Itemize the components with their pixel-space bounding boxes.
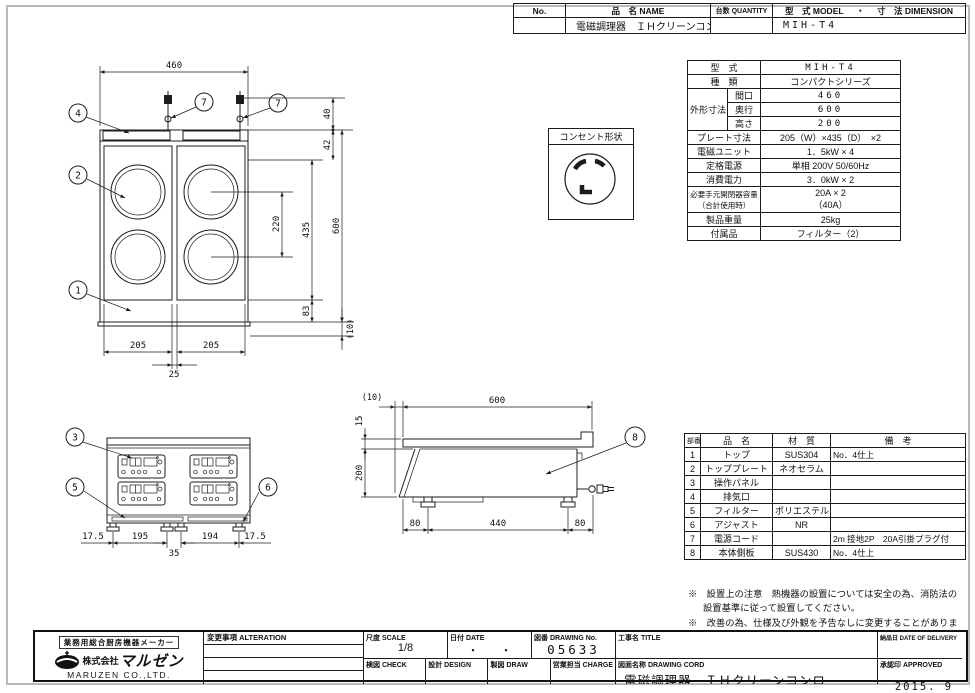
dim-margin-left: 17.5	[82, 532, 104, 542]
spec-power-label: 消費電力	[688, 173, 761, 187]
parts-row: 1トップSUS304No．4仕上	[685, 448, 966, 462]
check-cell: 検図 CHECK	[364, 659, 425, 684]
dim-overhang: (10)	[362, 393, 382, 403]
front-view-dimensions: 17.5 195 194 17.5 35	[81, 532, 271, 559]
power-cord-left	[164, 91, 172, 131]
date-value: ・ ・	[448, 642, 531, 658]
spec-weight-value: 25kg	[761, 213, 901, 227]
dim-base: (10)	[346, 319, 355, 339]
dim-depth: 600	[332, 218, 342, 234]
spec-depth-value: 600	[761, 103, 901, 117]
foot	[175, 523, 187, 531]
date-cell: 日付 DATE ・ ・	[447, 632, 531, 658]
front-view-body	[107, 438, 250, 531]
spec-table: 型 式 MIH-T4 種 類 コンパクトシリーズ 外形寸法 間口 460 奥行 …	[687, 60, 900, 241]
dim-front: 42	[323, 140, 333, 151]
charge-cell: 営業担当 CHARGE	[550, 659, 615, 684]
parts-row: 4排気口	[685, 490, 966, 504]
spec-kind-value: コンパクトシリーズ	[761, 75, 901, 89]
parts-col-name: 品 名	[701, 434, 773, 448]
value-row: 電磁調理器 ＩＨクリーンコンロ MIH-T4	[514, 18, 966, 34]
spec-rated-value: 単相 200V 50/60Hz	[761, 159, 901, 173]
parts-row: 7電源コード2m 接地2P 20A引掛プラグ付	[685, 532, 966, 546]
dim-margin-right: 17.5	[244, 532, 266, 542]
drawing-no-value: 05633	[532, 642, 615, 657]
title-block: 業務用総合厨房機器メーカー 株式会社 マルゼン MARUZEN CO.,LTD.…	[33, 630, 968, 682]
parts-row: 5フィルターポリエステル	[685, 504, 966, 518]
power-cord-right	[236, 91, 244, 131]
spec-accessory-value: フィルター（2）	[761, 227, 901, 241]
spec-unit-label: 電磁ユニット	[688, 145, 761, 159]
scale-cell: 尺度 SCALE 1/8	[364, 632, 447, 658]
spec-height-value: 200	[761, 117, 901, 131]
note-1: ※ 設置上の注意 熱機器の設置については安全の為、消防法の 設置基準に従って設置…	[688, 588, 968, 616]
callout-panel: 3	[72, 433, 78, 444]
dim-foot-span: 440	[490, 519, 506, 529]
project-title-cell: 工事名 TITLE	[615, 632, 877, 658]
dim-plate-right: 205	[203, 341, 219, 351]
spec-power-value: 3．0kW × 2	[761, 173, 901, 187]
company-logo-text: マルゼン	[120, 650, 184, 671]
value-no	[514, 18, 566, 34]
callout-plate: 2	[75, 171, 81, 182]
parts-row: 6アジャストNR	[685, 518, 966, 532]
dim-cord: 40	[323, 109, 333, 120]
dim-span-right: 194	[202, 532, 218, 542]
drawing-name-cell: 図面名称 DRAWING CORD 電磁調理器 ＩＨクリーンコンロ	[615, 658, 877, 684]
drawing-no-cell: 図番 DRAWING No. 05633	[531, 632, 615, 658]
side-view-dimensions: 600 (10) 15 200 80 440 80	[355, 393, 593, 534]
foot	[161, 523, 173, 531]
spec-model-value: MIH-T4	[761, 61, 901, 75]
product-name: 電磁調理器 ＩＨクリーンコンロ	[566, 18, 711, 34]
callout-cord-right: 7	[275, 99, 281, 110]
dim-plate-height: 15	[355, 416, 365, 427]
outlet-shape-box: コンセント形状	[548, 128, 634, 220]
dim-gap: 25	[169, 370, 180, 380]
side-view-body	[399, 432, 614, 507]
header-dimension: 寸 法 DIMENSION	[877, 5, 953, 17]
spec-rated-label: 定格電源	[688, 159, 761, 173]
drawing-sheet: { "header_table": { "no_label": "No.", "…	[0, 0, 975, 692]
alteration-row	[204, 644, 363, 657]
company-block: 業務用総合厨房機器メーカー 株式会社 マルゼン MARUZEN CO.,LTD.	[35, 632, 203, 684]
side-view-drawing: 600 (10) 15 200 80 440 80 8	[355, 387, 670, 550]
callout-cord-left: 7	[201, 98, 207, 109]
spec-unit-value: 1．5kW × 4	[761, 145, 901, 159]
dim-back: 83	[302, 306, 312, 317]
callout-top: 1	[75, 286, 81, 297]
company-prefix: 株式会社	[82, 654, 118, 667]
foot	[421, 497, 435, 507]
spec-kind-label: 種 類	[688, 75, 761, 89]
control-panel-4	[190, 482, 237, 505]
side-view-callouts: 8	[546, 427, 645, 474]
header-no: No.	[514, 4, 566, 18]
spec-outer-label: 外形寸法	[688, 89, 728, 131]
alteration-block: 変更事項 ALTERATION	[203, 632, 363, 684]
header-model-dim: 型 式 MODEL ・ 寸 法 DIMENSION	[773, 4, 966, 18]
dim-span-left: 195	[132, 532, 148, 542]
parts-row: 2トッププレートネオセラム	[685, 462, 966, 476]
dim-plate-depth: 435	[302, 222, 312, 238]
front-view-callouts: 3 5 6	[66, 428, 277, 522]
header-model: 型 式 MODEL	[785, 5, 844, 17]
product-model: MIH-T4	[773, 18, 966, 34]
header-separator-dot: ・	[856, 5, 865, 17]
callout-adjust: 6	[265, 483, 271, 494]
parts-col-note: 備 考	[831, 434, 966, 448]
alteration-row	[204, 657, 363, 670]
filter-strip-right	[188, 517, 247, 521]
top-view-drawing: 460 40 42 220 435 83 600 (10) 205 205	[40, 52, 355, 385]
spec-width-label: 間口	[728, 89, 761, 103]
header-table: No. 品 名 NAME 台数 QUANTITY 型 式 MODEL ・ 寸 法…	[513, 3, 965, 34]
outlet-shape-title: コンセント形状	[549, 129, 633, 145]
value-qty	[711, 18, 773, 34]
burner-circles	[111, 165, 238, 284]
control-panel-3	[118, 482, 165, 505]
top-plate-profile	[403, 432, 593, 447]
parts-table: 部番 品 名 材 質 備 考 1トップSUS304No．4仕上 2トッププレート…	[684, 433, 965, 560]
maruzen-logo-icon	[54, 651, 80, 669]
draw-cell: 製図 DRAW	[487, 659, 549, 684]
design-cell: 設計 DESIGN	[425, 659, 487, 684]
alteration-label: 変更事項 ALTERATION	[204, 632, 363, 644]
filter-strip-left	[112, 517, 183, 521]
top-view-body	[98, 91, 250, 326]
spec-breaker-value: 20A × 2 （40A）	[761, 187, 901, 213]
spec-breaker-label: 必要手元開閉器容量 （合計使用時）	[688, 187, 761, 213]
dim-plate-left: 205	[130, 341, 146, 351]
foot	[107, 523, 119, 531]
dim-pitch: 220	[272, 216, 282, 232]
twist-lock-outlet-icon	[549, 145, 631, 213]
company-tagline: 業務用総合厨房機器メーカー	[59, 636, 180, 649]
parts-col-material: 材 質	[773, 434, 831, 448]
header-row: No. 品 名 NAME 台数 QUANTITY 型 式 MODEL ・ 寸 法…	[514, 4, 966, 18]
dim-height: 200	[355, 465, 365, 481]
drawing-name-value: 電磁調理器 ＩＨクリーンコンロ	[624, 670, 877, 684]
callout-filter: 5	[72, 483, 78, 494]
parts-header-row: 部番 品 名 材 質 備 考	[685, 434, 966, 448]
spec-plate-value: 205（W）×435（D） ×2	[761, 131, 901, 145]
spec-width-value: 460	[761, 89, 901, 103]
scale-date-number-row: 尺度 SCALE 1/8 日付 DATE ・ ・ 図番 DRAWING No. …	[363, 632, 615, 658]
callout-vent: 4	[75, 109, 81, 120]
spec-accessory-label: 付属品	[688, 227, 761, 241]
front-view-drawing: 17.5 195 194 17.5 35 3 5 6	[55, 418, 355, 568]
dim-center-gap: 35	[169, 549, 180, 559]
company-name-en: MARUZEN CO.,LTD.	[35, 670, 203, 680]
header-qty: 台数 QUANTITY	[711, 4, 773, 18]
dim-width: 460	[166, 61, 182, 71]
vent-slots-right	[183, 131, 240, 140]
scale-value: 1/8	[364, 642, 447, 654]
spec-plate-label: プレート寸法	[688, 131, 761, 145]
parts-row: 3操作パネル	[685, 476, 966, 490]
control-panel-2	[190, 455, 237, 478]
spec-depth-label: 奥行	[728, 103, 761, 117]
issue-date: 2015. 9	[878, 681, 970, 693]
alteration-row	[204, 670, 363, 683]
dim-depth: 600	[489, 396, 505, 406]
dim-foot-back: 80	[575, 519, 586, 529]
control-panel-1	[118, 455, 165, 478]
delivery-cell: 納品日 DATE OF DELIVERY	[877, 632, 962, 658]
callout-side-panel: 8	[632, 433, 638, 444]
parts-col-no: 部番	[685, 434, 701, 448]
power-cord-side	[577, 485, 614, 493]
foot	[561, 497, 575, 507]
dim-foot-front: 80	[410, 519, 421, 529]
spec-model-label: 型 式	[688, 61, 761, 75]
top-view-callouts: 4 7 7 2 1	[69, 93, 287, 311]
top-view-dimensions: 460 40 42 220 435 83 600 (10) 205 205	[100, 61, 355, 380]
vent-slots-left	[103, 131, 170, 140]
approval-row: 検図 CHECK 設計 DESIGN 製図 DRAW 営業担当 CHARGE	[363, 658, 615, 684]
header-name: 品 名 NAME	[566, 4, 711, 18]
spec-weight-label: 製品重量	[688, 213, 761, 227]
parts-row: 8本体側板SUS430No．4仕上	[685, 546, 966, 560]
spec-height-label: 高さ	[728, 117, 761, 131]
foot	[233, 523, 245, 531]
